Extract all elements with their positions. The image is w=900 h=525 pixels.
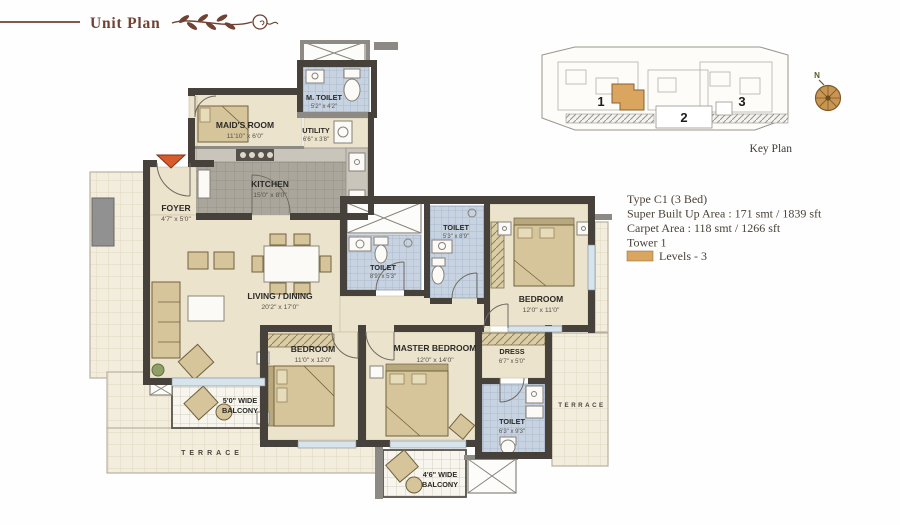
sliding-door (172, 378, 265, 386)
page-title: Unit Plan (90, 15, 161, 32)
levels-label: Levels - 3 (659, 249, 707, 263)
svg-text:6'7" x 5'0": 6'7" x 5'0" (499, 359, 525, 365)
label-toilet-guest: TOILET (443, 223, 469, 232)
wardrobe (479, 333, 545, 345)
key-plan: 1 2 3 Key Plan (542, 47, 792, 155)
compass-icon: N (814, 71, 840, 111)
label-foyer: FOYER (161, 203, 190, 213)
wc-icon (501, 440, 515, 454)
utility-washer-icon (334, 121, 352, 143)
entry-arrow-icon (157, 155, 185, 168)
svg-text:BALCONY: BALCONY (422, 480, 458, 489)
wc-tank-icon (374, 237, 388, 245)
svg-text:5'2" x 4'2": 5'2" x 4'2" (311, 104, 337, 110)
svg-text:15'0" x 8'0": 15'0" x 8'0" (253, 192, 287, 199)
page-header: Unit Plan (0, 13, 278, 32)
svg-text:20'2" x 17'0": 20'2" x 17'0" (261, 304, 299, 311)
levels-swatch (627, 251, 653, 261)
sliding-door (390, 441, 466, 448)
planter (92, 198, 114, 246)
key-plan-caption: Key Plan (750, 143, 793, 155)
svg-text:6'6" x 3'8": 6'6" x 3'8" (303, 137, 329, 143)
label-bedroom-left: BEDROOM (291, 344, 335, 354)
label-terrace-left: TERRACE (181, 450, 243, 457)
svg-text:5'3" x 8'9": 5'3" x 8'9" (443, 234, 469, 240)
svg-text:BALCONY: BALCONY (222, 406, 258, 415)
washbasin-icon (349, 237, 371, 251)
key-plan-block-small (716, 102, 732, 115)
room-toilet-guest (430, 206, 484, 298)
label-toilet-master: TOILET (499, 417, 525, 426)
floor-plan-canvas: Unit Plan 1 2 3 Key Plan (0, 0, 900, 525)
label-bedroom-right: BEDROOM (519, 294, 563, 304)
wc-tank-icon (432, 258, 445, 266)
wc-icon (432, 266, 444, 284)
svg-text:11'10" x 6'0": 11'10" x 6'0" (227, 133, 264, 140)
foyer-cabinet (198, 170, 210, 198)
washbasin-icon (432, 240, 452, 253)
svg-text:12'0" x 11'0": 12'0" x 11'0" (523, 307, 560, 314)
tower-name: Tower 1 (627, 236, 666, 250)
label-terrace-right: TERRACE (558, 402, 605, 409)
tower-2-label: 2 (680, 110, 687, 125)
tower-1-label: 1 (597, 94, 604, 109)
key-plan-hatch-right (700, 114, 788, 123)
shower-icon (526, 386, 543, 403)
wc-icon (375, 245, 387, 263)
window (508, 326, 562, 332)
carpet-area: Carpet Area : 118 smt / 1266 sft (627, 221, 781, 235)
label-balcony-left: 5'0" WIDE (223, 396, 258, 405)
svg-text:4'7" x 5'0": 4'7" x 5'0" (161, 216, 191, 223)
svg-text:8'9" x 5'3": 8'9" x 5'3" (370, 274, 396, 280)
unit-type: Type C1 (3 Bed) (627, 192, 707, 206)
super-built-up-area: Super Built Up Area : 171 smt / 1839 sft (627, 207, 822, 221)
unit-plan-page: Unit Plan 1 2 3 Key Plan (0, 0, 900, 525)
north-label: N (814, 71, 820, 80)
label-kitchen: KITCHEN (251, 179, 289, 189)
svg-text:12'0" x 14'0": 12'0" x 14'0" (416, 357, 454, 364)
ornament-icon (172, 13, 278, 32)
key-plan-hatch-left (566, 114, 654, 123)
label-balcony-bottom: 4'6" WIDE (423, 470, 458, 479)
plant-icon (152, 364, 164, 376)
svg-text:11'0" x 12'0": 11'0" x 12'0" (295, 357, 332, 364)
washbasin-icon (526, 406, 543, 418)
tower-3-label: 3 (738, 94, 745, 109)
label-toilet-common: TOILET (370, 263, 396, 272)
label-living-dining: LIVING / DINING (247, 291, 313, 301)
washbasin-icon (306, 70, 324, 83)
label-master-bedroom: MASTER BEDROOM (394, 343, 477, 353)
label-m-toilet: M. TOILET (306, 93, 342, 102)
wc-tank-icon (344, 69, 360, 78)
shaft-icon (468, 459, 516, 493)
label-utility: UTILITY (302, 126, 330, 135)
svg-text:6'3" x 9'3": 6'3" x 9'3" (499, 429, 525, 435)
label-maids-room: MAID'S ROOM (216, 120, 274, 130)
unit-info: Type C1 (3 Bed) Super Built Up Area : 17… (627, 192, 822, 263)
label-dress: DRESS (499, 347, 524, 356)
wc-icon (344, 79, 360, 101)
window (298, 441, 356, 448)
window (588, 245, 595, 290)
kitchen-sink-icon (349, 153, 365, 171)
